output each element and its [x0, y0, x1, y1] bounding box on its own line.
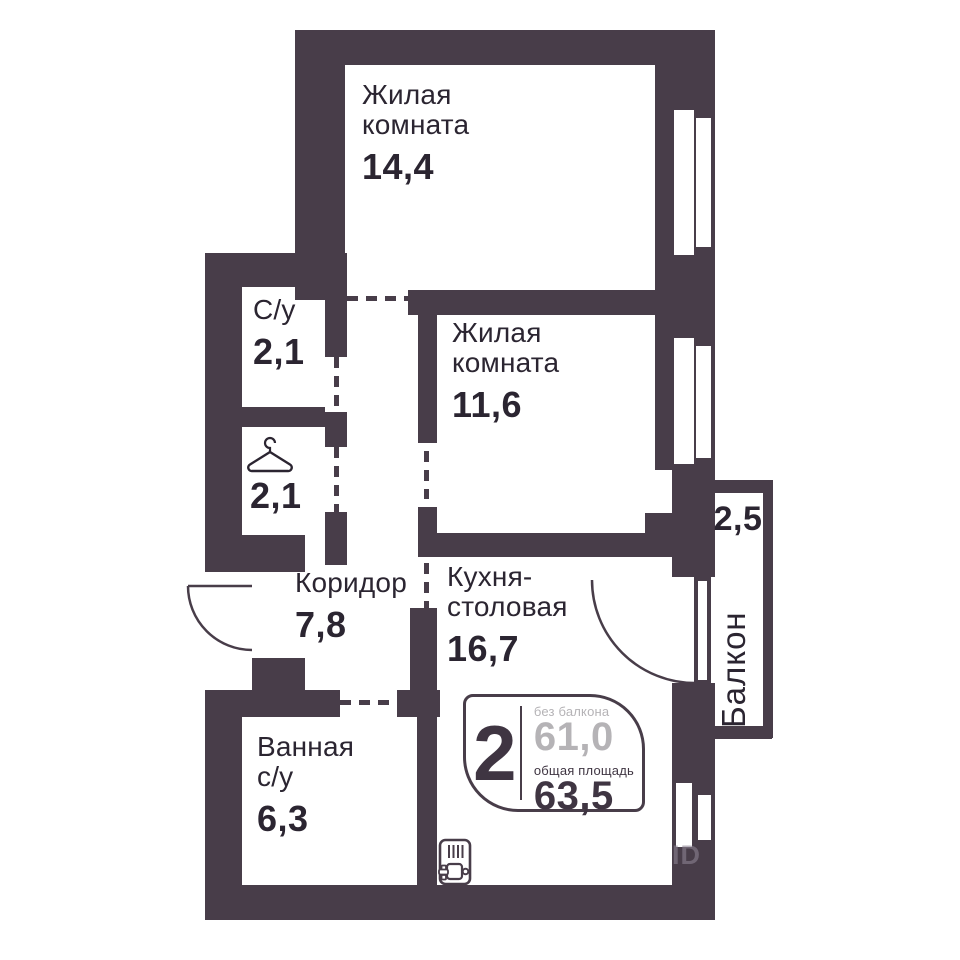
wall-kitchen-top [418, 533, 673, 557]
wall-balcony-right [763, 480, 773, 738]
wall-room2-top [408, 290, 655, 315]
window [674, 338, 694, 464]
room-wc-small: С/у 2,1 [253, 295, 343, 371]
room-area: 7,8 [295, 606, 435, 645]
hanger-icon [244, 436, 296, 478]
entrance-door-swing-arc [182, 578, 262, 663]
room-area: 11,6 [452, 386, 612, 425]
wall-step [645, 513, 673, 533]
window [696, 118, 711, 247]
wall-bathroom-right [417, 717, 437, 885]
room-kitchen: Кухня-столовая 16,7 [447, 562, 582, 668]
balcony-area: 2,5 [712, 500, 764, 539]
room-living2: Жилая комната 11,6 [452, 318, 612, 424]
door-opening-dashed [347, 296, 408, 301]
wall-corridor-room2 [418, 315, 437, 443]
without-balcony-value: 61,0 [534, 719, 634, 756]
wall-bathroom-top-left [242, 690, 340, 717]
wall-outer-left [205, 287, 242, 565]
window [676, 783, 692, 847]
apartment-info-badge: 2 без балкона 61,0 общая площадь 63,5 [463, 694, 645, 812]
window [674, 110, 694, 255]
wall-segment [325, 412, 347, 427]
wall-bathroom-top-right [397, 690, 440, 717]
room-wardrobe-area: 2,1 [250, 475, 302, 517]
balcony-label: Балкон [706, 550, 762, 790]
wall-wc-wardrobe-divider [240, 407, 325, 427]
wall-segment [325, 512, 347, 565]
stove-sink-icon [438, 838, 474, 888]
wall-bottom [205, 885, 715, 920]
wall-wc-top [205, 253, 347, 287]
wall-entry-upper [205, 535, 305, 572]
wall-segment [325, 427, 347, 447]
door-opening-dashed [340, 700, 397, 705]
room-bathroom: Ванная с/у 6,3 [257, 732, 367, 838]
room-area: 16,7 [447, 630, 582, 669]
room-corridor: Коридор 7,8 [295, 568, 435, 644]
room-label-text: Коридор [295, 568, 435, 598]
rooms-count: 2 [466, 697, 520, 809]
room-label-text: Кухня-столовая [447, 562, 582, 622]
room-area: 6,3 [257, 800, 367, 839]
room-label-text: Ванная с/у [257, 732, 367, 792]
room-label-text: Жилая комната [452, 318, 612, 378]
room-label-text: Жилая комната [362, 80, 522, 140]
room-area: 2,1 [253, 333, 343, 372]
window [698, 795, 711, 840]
door-opening-dashed [334, 447, 339, 512]
door-opening-dashed [424, 451, 429, 499]
floor-plan: Жилая комната 14,4 Жилая комната 11,6 С/… [0, 0, 960, 960]
watermark: ID [672, 840, 701, 871]
wall-top [295, 30, 715, 65]
room-living1: Жилая комната 14,4 [362, 80, 522, 186]
total-area-value: 63,5 [534, 778, 634, 815]
room-label-text: С/у [253, 295, 343, 325]
room-area: 14,4 [362, 148, 522, 187]
window [696, 346, 711, 458]
balcony-door-swing-arc [588, 572, 703, 690]
